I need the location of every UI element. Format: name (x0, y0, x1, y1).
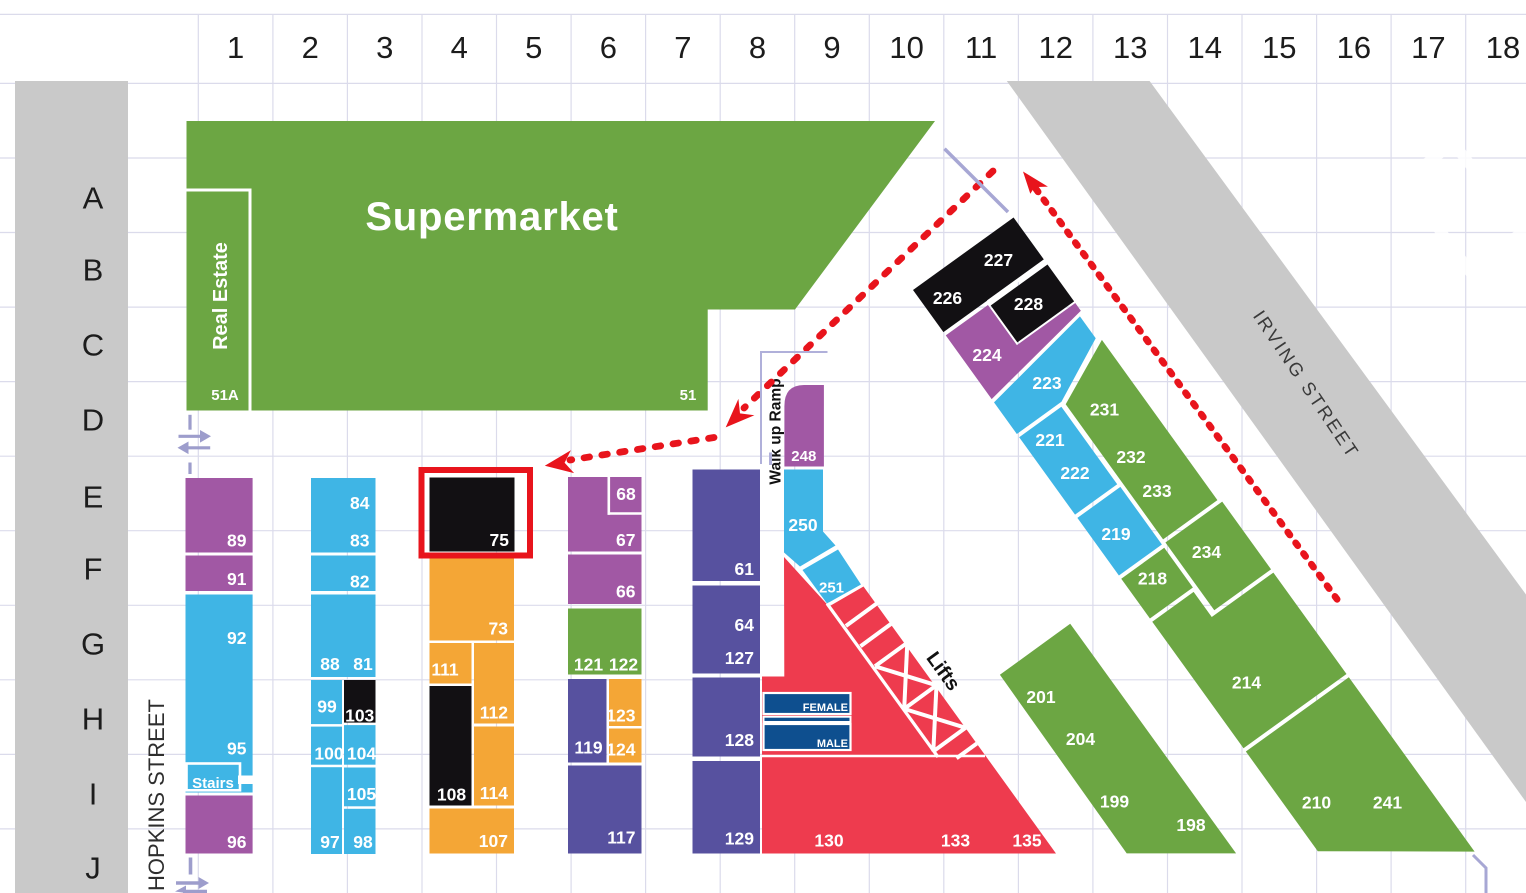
svg-text:4: 4 (451, 30, 468, 65)
svg-text:12: 12 (1038, 30, 1072, 65)
svg-text:51: 51 (680, 387, 697, 404)
svg-text:100: 100 (314, 744, 343, 764)
svg-text:H: H (82, 702, 104, 737)
svg-text:130: 130 (814, 831, 843, 851)
svg-text:61: 61 (735, 559, 755, 579)
svg-text:FEMALE: FEMALE (803, 702, 848, 714)
svg-text:107: 107 (479, 831, 508, 851)
svg-text:F: F (84, 552, 103, 587)
svg-text:MALE: MALE (817, 738, 848, 750)
svg-text:124: 124 (606, 740, 635, 760)
svg-text:67: 67 (616, 530, 635, 550)
svg-text:104: 104 (347, 744, 376, 764)
svg-text:199: 199 (1100, 792, 1129, 812)
svg-text:251: 251 (819, 580, 844, 597)
svg-text:A: A (83, 181, 104, 216)
svg-text:E: E (83, 480, 104, 515)
svg-text:Real Estate: Real Estate (210, 242, 232, 350)
svg-text:219: 219 (1101, 524, 1130, 544)
svg-text:224: 224 (972, 345, 1001, 365)
svg-text:114: 114 (480, 783, 508, 803)
svg-text:226: 226 (933, 288, 962, 308)
svg-text:128: 128 (725, 730, 754, 750)
svg-text:73: 73 (489, 619, 509, 639)
svg-text:7: 7 (674, 30, 691, 65)
svg-text:84: 84 (350, 493, 370, 513)
svg-text:68: 68 (616, 484, 636, 504)
svg-text:6: 6 (600, 30, 617, 65)
svg-text:Stairs: Stairs (192, 775, 234, 792)
svg-text:223: 223 (1032, 373, 1061, 393)
svg-text:103: 103 (345, 706, 374, 726)
svg-text:3: 3 (376, 30, 393, 65)
svg-text:C: C (82, 328, 104, 363)
svg-text:210: 210 (1302, 793, 1331, 813)
svg-text:96: 96 (227, 832, 247, 852)
svg-text:221: 221 (1035, 430, 1064, 450)
svg-text:97: 97 (320, 832, 339, 852)
svg-text:2: 2 (302, 30, 319, 65)
svg-text:121: 121 (574, 655, 603, 675)
svg-text:16: 16 (1337, 30, 1371, 65)
svg-text:233: 233 (1142, 481, 1171, 501)
svg-text:95: 95 (227, 739, 247, 759)
svg-text:201: 201 (1026, 687, 1055, 707)
svg-text:234: 234 (1192, 542, 1221, 562)
svg-text:204: 204 (1066, 729, 1095, 749)
svg-text:232: 232 (1116, 447, 1145, 467)
svg-text:222: 222 (1060, 463, 1089, 483)
svg-text:88: 88 (320, 654, 340, 674)
svg-text:64: 64 (735, 615, 755, 635)
svg-text:1: 1 (227, 30, 244, 65)
svg-text:15: 15 (1262, 30, 1296, 65)
svg-text:133: 133 (941, 831, 970, 851)
svg-text:B: B (83, 253, 104, 288)
svg-text:129: 129 (725, 829, 754, 849)
svg-text:13: 13 (1113, 30, 1147, 65)
svg-text:G: G (81, 627, 105, 662)
svg-text:227: 227 (984, 250, 1013, 270)
svg-text:83: 83 (350, 531, 370, 551)
svg-text:122: 122 (609, 655, 638, 675)
svg-text:108: 108 (437, 785, 466, 805)
svg-text:250: 250 (788, 515, 817, 535)
svg-text:J: J (85, 851, 101, 886)
svg-text:66: 66 (616, 582, 636, 602)
svg-text:10: 10 (889, 30, 923, 65)
svg-text:127: 127 (725, 648, 754, 668)
svg-text:18: 18 (1486, 30, 1520, 65)
svg-text:111: 111 (431, 660, 459, 680)
svg-text:HOPKINS STREET: HOPKINS STREET (144, 699, 169, 891)
svg-text:Walk up Ramp: Walk up Ramp (768, 378, 785, 484)
svg-text:241: 241 (1373, 793, 1402, 813)
svg-text:228: 228 (1014, 294, 1043, 314)
svg-text:117: 117 (607, 828, 635, 848)
svg-text:I: I (89, 777, 98, 812)
svg-text:51A: 51A (211, 387, 239, 404)
svg-text:135: 135 (1012, 831, 1041, 851)
svg-text:91: 91 (227, 569, 247, 589)
svg-text:75: 75 (490, 530, 510, 550)
svg-text:105: 105 (347, 784, 376, 804)
svg-text:119: 119 (574, 738, 602, 758)
svg-text:231: 231 (1090, 400, 1119, 420)
svg-text:92: 92 (227, 628, 247, 648)
svg-text:98: 98 (353, 832, 373, 852)
svg-text:Supermarket: Supermarket (365, 195, 618, 239)
svg-text:99: 99 (317, 697, 337, 717)
svg-text:11: 11 (965, 30, 997, 65)
svg-text:123: 123 (606, 706, 635, 726)
svg-text:9: 9 (823, 30, 840, 65)
svg-text:8: 8 (749, 30, 766, 65)
svg-text:81: 81 (353, 654, 373, 674)
svg-text:198: 198 (1176, 815, 1205, 835)
svg-text:218: 218 (1138, 569, 1167, 589)
svg-text:248: 248 (791, 448, 816, 465)
svg-text:14: 14 (1188, 30, 1222, 65)
svg-text:17: 17 (1411, 30, 1445, 65)
svg-text:5: 5 (525, 30, 542, 65)
svg-text:D: D (82, 403, 104, 438)
svg-text:89: 89 (227, 531, 247, 551)
svg-text:214: 214 (1232, 673, 1261, 693)
svg-text:112: 112 (480, 703, 508, 723)
svg-text:82: 82 (350, 572, 370, 592)
